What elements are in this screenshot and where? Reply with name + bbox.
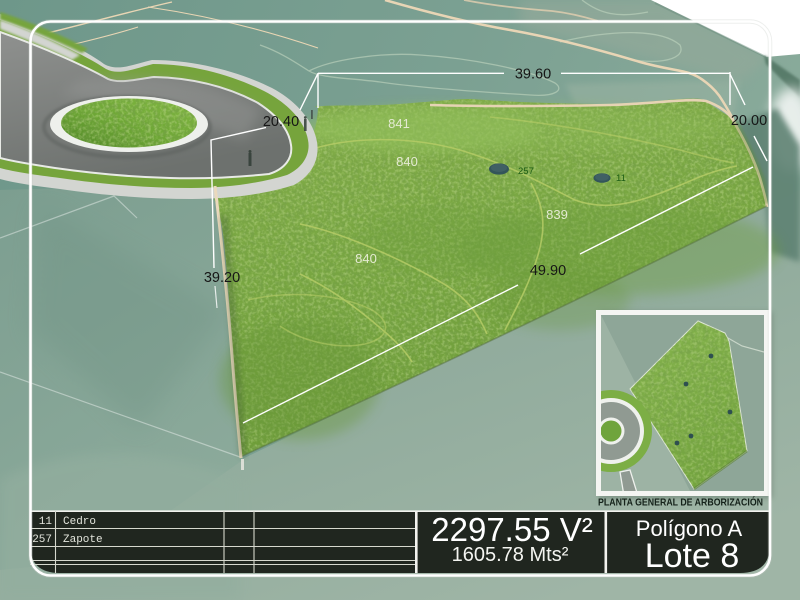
svg-text:20.00: 20.00 xyxy=(731,113,767,129)
svg-text:Lote 8: Lote 8 xyxy=(645,537,740,575)
svg-text:839: 839 xyxy=(546,207,568,222)
svg-text:11: 11 xyxy=(39,516,53,528)
svg-text:1605.78 Mts²: 1605.78 Mts² xyxy=(452,544,569,566)
svg-text:Cedro: Cedro xyxy=(63,516,96,528)
svg-text:Zapote: Zapote xyxy=(63,534,103,546)
svg-text:20.40: 20.40 xyxy=(263,114,299,130)
svg-text:PLANTA GENERAL DE ARBORIZACIÓN: PLANTA GENERAL DE ARBORIZACIÓN xyxy=(598,496,763,509)
svg-text:841: 841 xyxy=(388,116,410,131)
svg-text:840: 840 xyxy=(355,251,377,266)
svg-text:2297.55 V²: 2297.55 V² xyxy=(431,511,592,548)
svg-text:39.20: 39.20 xyxy=(204,270,240,286)
svg-text:49.90: 49.90 xyxy=(530,263,566,279)
svg-text:257: 257 xyxy=(32,534,52,546)
svg-text:840: 840 xyxy=(396,154,418,169)
svg-text:257: 257 xyxy=(518,166,534,177)
svg-text:11: 11 xyxy=(616,173,626,184)
svg-text:39.60: 39.60 xyxy=(515,67,551,83)
